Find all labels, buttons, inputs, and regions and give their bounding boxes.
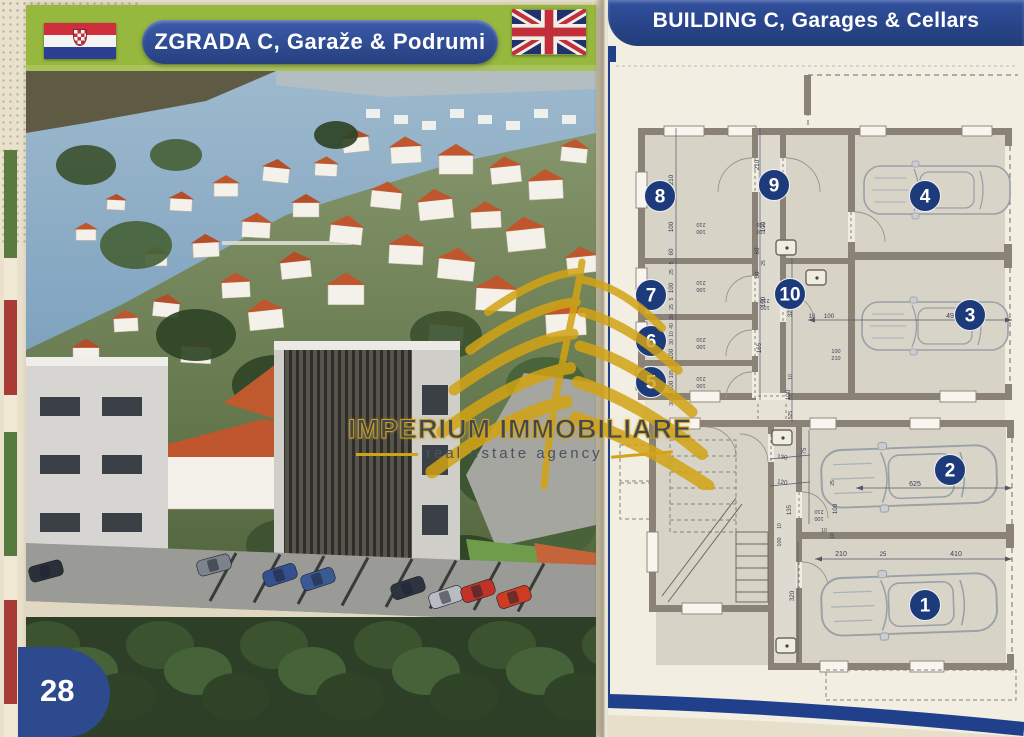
dimension-label: 25 — [669, 304, 675, 310]
unit-badge-10: 10 — [775, 279, 806, 310]
dimension-label: 10 — [830, 533, 836, 539]
dimension-label: 75 — [801, 447, 808, 454]
floor-plan: 2101006052510052530401030100510510053021… — [610, 62, 1020, 707]
croatia-flag-icon — [44, 23, 116, 59]
svg-text:5: 5 — [646, 373, 657, 394]
photo-page: ZGRADA C, Garaže & Podrumi 28 — [26, 5, 596, 737]
dimension-label: 210 — [696, 279, 705, 285]
dimension-label: 100 — [824, 313, 835, 320]
dimension-label: 5 — [669, 393, 675, 396]
unit-badge-8: 8 — [645, 181, 676, 212]
unit-badge-9: 9 — [759, 170, 790, 201]
dimension-label: 210 — [696, 336, 705, 342]
plan-blue-bottom-border — [608, 689, 1024, 737]
left-title: ZGRADA C, Garaže & Podrumi — [154, 29, 485, 54]
svg-text:4: 4 — [920, 187, 931, 208]
dimension-label: 100 — [760, 296, 767, 307]
dimension-label: 100 — [668, 348, 675, 359]
page-edge-strips — [0, 80, 26, 737]
dimension-label: 105 — [669, 370, 675, 379]
dimension-label: 135 — [786, 504, 793, 515]
dimension-label: 625 — [909, 481, 921, 488]
rendered-building-left — [26, 357, 168, 562]
uk-flag-icon — [512, 9, 586, 55]
dimension-label: 25 — [761, 260, 767, 266]
dimension-label: 120 — [777, 478, 789, 486]
dimension-label: 25 — [880, 552, 887, 558]
dimension-label: 100 — [668, 380, 675, 391]
right-title: BUILDING C, Garages & Cellars — [653, 9, 980, 32]
dimension-label: 100 — [696, 228, 705, 234]
svg-text:1: 1 — [920, 596, 931, 617]
dimension-label: 100 — [696, 343, 705, 349]
plan-page: BUILDING C, Garages & Cellars — [608, 0, 1024, 737]
unit-badge-4: 4 — [910, 181, 941, 212]
dimension-label: 10 — [821, 528, 827, 534]
dimension-label: 30 — [669, 314, 675, 320]
dimension-label: 100 — [696, 286, 705, 292]
unit-badge-2: 2 — [935, 455, 966, 486]
dimension-label: 25 — [669, 269, 675, 275]
dimension-label: 100 — [814, 515, 823, 521]
dimension-label: 10 — [669, 331, 675, 337]
dimension-label: 10 — [777, 523, 783, 529]
page-number: 28 — [40, 673, 74, 709]
unit-badge-6: 6 — [636, 326, 667, 357]
dimension-label: 100 — [668, 282, 675, 293]
dimension-label: 100 — [696, 382, 705, 388]
svg-text:8: 8 — [655, 187, 666, 208]
svg-text:3: 3 — [965, 306, 976, 327]
dimension-label: 5 — [669, 362, 675, 365]
dimension-label: 5 — [669, 261, 675, 264]
dimension-label: 410 — [950, 551, 962, 558]
svg-text:6: 6 — [646, 332, 657, 353]
dimension-label: 30 — [669, 339, 675, 345]
dimension-label: 60 — [754, 247, 761, 254]
dimension-label: 100 — [832, 503, 839, 514]
dimension-label: 525 — [788, 411, 794, 420]
svg-text:10: 10 — [779, 285, 800, 306]
unit-badge-3: 3 — [955, 300, 986, 331]
dimension-label: 100 — [668, 221, 675, 232]
dimension-label: 100 — [777, 537, 783, 546]
dimension-label: 165 — [756, 342, 763, 353]
unit-badge-7: 7 — [636, 280, 667, 311]
dimension-label: 210 — [814, 508, 823, 514]
dimension-label: 100 — [785, 389, 792, 400]
left-header-banner: ZGRADA C, Garaže & Podrumi — [142, 20, 498, 64]
unit-badge-5: 5 — [636, 367, 667, 398]
svg-text:9: 9 — [769, 176, 780, 197]
dimension-label: 60 — [668, 248, 675, 255]
dimension-label: 210 — [835, 551, 847, 558]
dimension-label: 25 — [830, 480, 836, 486]
dimension-label: 5 — [669, 297, 675, 300]
dimension-label: 130 — [777, 453, 789, 461]
dimension-label: 210 — [696, 375, 705, 381]
unit-badge-1: 1 — [910, 590, 941, 621]
dimension-label: 210 — [754, 159, 761, 170]
dimension-label: 10 — [809, 314, 816, 320]
svg-text:7: 7 — [646, 286, 657, 307]
dimension-label: 210 — [831, 356, 840, 362]
dimension-label: 100 — [760, 221, 767, 232]
rendered-building-centre — [274, 341, 460, 567]
dimension-label: 10 — [788, 374, 794, 380]
dimension-label: 40 — [669, 323, 675, 329]
dimension-label: 320 — [789, 590, 796, 601]
aerial-photo — [26, 5, 596, 737]
dimension-label: 30 — [669, 400, 675, 406]
dimension-label: 100 — [831, 349, 840, 355]
svg-text:2: 2 — [945, 461, 956, 482]
right-header-banner: BUILDING C, Garages & Cellars — [608, 0, 1024, 46]
dimension-label: 60 — [754, 271, 761, 278]
dimension-label: 210 — [696, 221, 705, 227]
